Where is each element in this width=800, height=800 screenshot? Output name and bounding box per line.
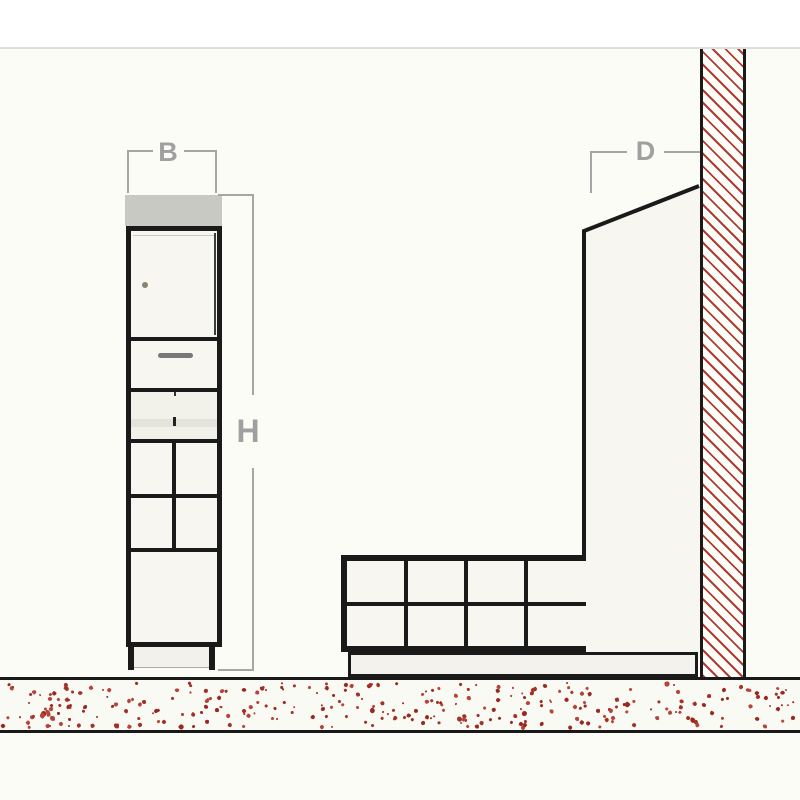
ground-speckle — [57, 712, 60, 715]
appliance-handle-strip — [131, 419, 217, 427]
ground-speckle — [102, 689, 105, 692]
ground-speckle — [520, 708, 523, 711]
ground-speckle — [69, 703, 73, 707]
ground-speckle — [540, 703, 544, 707]
ground-speckle — [791, 701, 794, 704]
ground-speckle — [216, 695, 222, 701]
ground-speckle — [608, 709, 613, 714]
ground-speckle — [432, 714, 435, 717]
ground-speckle — [171, 697, 174, 700]
ground-speckle — [550, 700, 553, 703]
ground-speckle — [130, 697, 134, 701]
ground-speckle — [625, 710, 630, 715]
ground-speckle — [123, 709, 128, 714]
ground-speckle — [28, 702, 30, 704]
ground-speckle — [156, 720, 159, 723]
width-dimension-label: B — [152, 139, 184, 166]
depth-dimension-label: D — [627, 138, 664, 165]
depth-dimension-line — [590, 151, 627, 153]
ground-speckle — [26, 720, 31, 725]
ground-speckle — [558, 689, 563, 694]
ground-speckle — [775, 706, 781, 712]
ground-speckle — [707, 694, 711, 698]
countertop — [125, 195, 222, 226]
ground-speckle — [567, 686, 570, 689]
ground-speckle — [467, 688, 471, 692]
height-dimension-line — [252, 195, 254, 395]
ground-speckle — [567, 725, 572, 730]
ground-speckle — [224, 690, 228, 694]
height-dimension-line — [252, 468, 254, 671]
ground-speckle — [512, 686, 515, 689]
ground-speckle — [88, 685, 93, 690]
ground-speckle — [65, 697, 70, 702]
ground-speckle — [790, 715, 795, 720]
ground-speckle — [477, 714, 480, 717]
ground-speckle — [255, 701, 259, 705]
door-edge-line — [214, 233, 216, 335]
ground-speckle — [315, 692, 318, 695]
ground-speckle — [748, 704, 754, 710]
ground-band — [0, 677, 800, 733]
drawer-front — [131, 341, 217, 388]
width-dimension-line — [184, 150, 217, 152]
ground-speckle — [45, 723, 50, 728]
ground-speckle — [29, 693, 33, 697]
ground-speckle — [442, 709, 446, 713]
ground-speckle — [745, 688, 751, 694]
ground-speckle — [720, 724, 724, 728]
ground-speckle — [459, 682, 463, 686]
ground-speckle — [787, 704, 790, 707]
ground-speckle — [678, 699, 684, 705]
ground-speckle — [763, 724, 767, 728]
shelf-divider — [131, 494, 217, 498]
ground-speckle — [58, 703, 63, 708]
ground-speckle — [350, 684, 354, 688]
ground-speckle — [615, 697, 620, 702]
ground-speckle — [107, 688, 113, 694]
ground-speckle — [31, 714, 35, 718]
ground-speckle — [650, 708, 653, 711]
ground-speckle — [566, 682, 568, 684]
plinth-recess-panel — [134, 647, 209, 668]
ground-speckle — [587, 691, 592, 696]
ground-speckle — [582, 701, 585, 704]
ground-speckle — [174, 688, 180, 694]
ground-speckle — [522, 696, 526, 700]
ground-speckle — [579, 721, 584, 726]
ground-speckle — [82, 710, 85, 713]
ground-speckle — [406, 713, 411, 718]
ceiling-line — [0, 47, 800, 49]
ground-speckle — [375, 683, 380, 688]
ground-speckle — [529, 691, 534, 696]
ground-speckle — [676, 690, 681, 695]
ground-speckle — [578, 706, 582, 710]
ground-speckle — [401, 702, 404, 705]
ground-speckle — [739, 685, 744, 690]
ground-speckle — [429, 699, 433, 703]
ground-speckle — [380, 716, 384, 720]
ground-speckle — [248, 704, 253, 709]
ground-speckle — [521, 711, 527, 717]
ground-speckle — [281, 687, 284, 690]
ground-speckle — [83, 704, 87, 708]
ground-speckle — [319, 724, 325, 730]
ground-speckle — [70, 690, 74, 694]
ground-speckle — [136, 717, 140, 721]
ground-speckle — [68, 718, 71, 721]
ground-speckle — [106, 696, 109, 699]
ground-speckle — [437, 687, 441, 691]
top-margin — [0, 0, 800, 47]
ground-speckle — [539, 721, 543, 725]
ground-speckle — [344, 689, 348, 693]
ground-speckle — [344, 715, 348, 719]
ground-speckle — [496, 689, 501, 694]
ground-speckle — [265, 705, 268, 708]
ground-speckle — [291, 711, 294, 714]
ground-speckle — [68, 725, 70, 727]
ground-speckle — [96, 716, 98, 718]
ground-speckle — [114, 703, 118, 707]
ground-speckle — [381, 711, 384, 714]
ground-speckle — [135, 682, 139, 686]
ground-speckle — [674, 710, 677, 713]
ground-speckle — [332, 694, 336, 698]
ground-speckle — [157, 708, 161, 712]
panel-tick-mark — [174, 392, 176, 396]
ground-speckle — [421, 721, 425, 725]
width-dimension-line — [215, 150, 217, 193]
ground-speckle — [575, 717, 579, 721]
ground-speckle — [573, 704, 579, 710]
ground-speckle — [598, 725, 602, 729]
ground-speckle — [631, 722, 637, 728]
cabinet-leg — [128, 647, 134, 670]
ground-speckle — [178, 724, 184, 730]
ground-speckle — [355, 706, 359, 710]
ground-speckle — [585, 720, 591, 726]
ground-speckle — [615, 705, 619, 709]
ground-speckle — [361, 698, 364, 701]
ground-speckle — [496, 698, 502, 704]
ground-speckle — [380, 701, 385, 706]
door-gap-line — [133, 235, 216, 236]
ground-speckle — [191, 724, 195, 728]
ground-speckle — [161, 720, 167, 726]
depth-dimension-line — [590, 151, 592, 193]
ground-speckle — [483, 707, 486, 710]
ground-speckle — [307, 685, 311, 689]
ground-speckle — [241, 708, 247, 714]
ground-speckle — [436, 720, 441, 725]
ground-speckle — [282, 701, 285, 704]
depth-dimension-line — [664, 151, 700, 153]
ground-speckle — [580, 691, 585, 696]
ground-speckle — [39, 694, 41, 696]
ground-speckle — [128, 725, 133, 730]
wall-section — [700, 49, 746, 677]
ground-speckle — [721, 698, 725, 702]
ground-speckle — [492, 708, 497, 713]
ground-speckle — [241, 725, 245, 729]
ground-speckle — [424, 714, 430, 720]
ground-speckle — [780, 718, 785, 723]
ground-speckle — [50, 716, 55, 721]
ground-speckle — [273, 706, 277, 710]
ground-speckle — [330, 705, 333, 708]
ground-speckle — [225, 713, 231, 719]
ground-speckle — [246, 713, 251, 718]
wall-hatch-pattern — [703, 49, 743, 677]
ground-speckle — [90, 723, 95, 728]
ground-speckle — [721, 688, 726, 693]
ground-speckle — [780, 703, 783, 706]
ground-speckle — [509, 720, 513, 724]
ground-speckle — [293, 684, 297, 688]
ground-speckle — [474, 684, 477, 687]
ground-speckle — [411, 718, 415, 722]
ground-speckle — [462, 714, 466, 718]
tall-cabinet-front-view — [126, 226, 222, 647]
ground-speckle — [539, 699, 543, 703]
base-cabinet-side-view — [341, 555, 586, 652]
ground-speckle — [525, 701, 531, 707]
ground-speckle — [324, 715, 328, 719]
ground-speckle — [6, 716, 10, 720]
ground-speckle — [754, 716, 760, 722]
ground-speckle — [709, 710, 715, 716]
ground-speckle — [421, 693, 425, 697]
ground-speckle — [18, 716, 21, 719]
cabinet-leg — [209, 647, 215, 670]
ground-speckle — [340, 703, 344, 707]
ground-speckle — [465, 724, 469, 728]
ground-speckle — [204, 688, 209, 693]
ground-speckle — [549, 710, 553, 714]
ground-speckle — [138, 722, 143, 727]
ground-speckle — [204, 705, 208, 709]
dimension-diagram: B H D — [0, 0, 800, 800]
width-dimension-line — [127, 150, 129, 193]
ground-speckle — [363, 721, 367, 725]
door-knob — [142, 282, 148, 288]
ground-speckle — [460, 722, 463, 725]
ground-speckle — [414, 709, 418, 713]
ground-speckle — [209, 696, 213, 700]
ground-speckle — [769, 705, 772, 708]
ground-speckle — [215, 708, 220, 713]
ground-speckle — [431, 689, 435, 693]
drawer-handle — [158, 353, 193, 358]
ground-speckle — [57, 697, 61, 701]
ground-speckle — [655, 716, 660, 721]
ground-speckle — [200, 711, 204, 715]
ground-speckle — [585, 687, 589, 691]
ground-speckle — [11, 688, 14, 691]
ground-speckle — [77, 690, 83, 696]
ground-speckle — [425, 690, 428, 693]
cabinet-door — [131, 231, 217, 337]
ground-speckle — [509, 695, 512, 698]
ground-speckle — [542, 684, 547, 689]
ground-speckle — [255, 690, 260, 695]
ground-speckle — [392, 709, 396, 713]
ground-speckle — [141, 700, 146, 705]
ground-speckle — [478, 721, 483, 726]
ground-speckle — [355, 692, 360, 697]
ground-speckle — [275, 718, 278, 721]
ground-speckle — [720, 717, 723, 720]
ground-speckle — [58, 721, 63, 726]
ground-speckle — [584, 705, 587, 708]
ground-speckle — [264, 688, 267, 691]
base-cabinet-row-divider — [347, 602, 586, 606]
ground-speckle — [28, 725, 32, 729]
ground-speckle — [623, 703, 626, 706]
ground-speckle — [569, 691, 574, 696]
ground-speckle — [46, 709, 51, 714]
sloped-side-panel — [582, 184, 701, 653]
ground-speckle — [775, 686, 780, 691]
ground-speckle — [189, 683, 193, 687]
ground-speckle — [252, 712, 255, 715]
width-dimension-line — [127, 150, 153, 152]
ground-speckle — [596, 709, 600, 713]
ground-speckle — [189, 691, 192, 694]
ground-speckle — [270, 717, 275, 722]
base-plinth — [348, 652, 698, 677]
ground-speckle — [47, 696, 53, 702]
ground-speckle — [667, 710, 672, 715]
ground-speckle — [281, 682, 284, 685]
ground-speckle — [152, 712, 154, 714]
ground-speckle — [325, 685, 331, 691]
ground-speckle — [77, 723, 82, 728]
ground-speckle — [763, 695, 768, 700]
ground-speckle — [51, 690, 57, 696]
ground-speckle — [521, 692, 524, 695]
ground-speckle — [330, 726, 333, 729]
appliance-panel — [131, 392, 217, 439]
ground-speckle — [454, 694, 458, 698]
ground-speckle — [632, 700, 635, 703]
ground-speckle — [292, 705, 295, 708]
ground-speckle — [241, 687, 247, 693]
ground-speckle — [657, 700, 661, 704]
ground-speckle — [564, 697, 569, 702]
ground-speckle — [344, 683, 349, 688]
ground-speckle — [785, 689, 788, 692]
bottom-door-panel — [131, 552, 217, 642]
ground-speckle — [467, 696, 471, 700]
height-dimension-tick — [218, 669, 254, 671]
ground-speckle — [320, 706, 325, 711]
ground-speckle — [665, 682, 670, 687]
ground-speckle — [475, 724, 479, 728]
ground-speckle — [394, 682, 398, 686]
ground-speckle — [512, 713, 517, 718]
ground-speckle — [227, 722, 232, 727]
ground-speckle — [726, 697, 730, 701]
ground-speckle — [692, 701, 697, 706]
ground-speckle — [205, 720, 209, 724]
ground-speckle — [455, 703, 457, 705]
ground-speckle — [628, 687, 632, 691]
ground-speckle — [777, 696, 781, 700]
ground-speckle — [673, 683, 676, 686]
ground-speckle — [371, 723, 375, 727]
ground-speckle — [0, 723, 5, 728]
ground-speckle — [678, 711, 681, 714]
panel-tick-mark — [173, 417, 176, 426]
ground-speckle — [702, 702, 707, 707]
height-dimension-tick — [218, 194, 254, 196]
ground-speckle — [695, 722, 701, 728]
height-dimension-label: H — [228, 415, 268, 447]
ground-speckle — [387, 713, 390, 716]
open-shelf-cells — [131, 443, 217, 548]
ground-speckle — [310, 715, 315, 720]
ground-speckle — [497, 716, 501, 720]
ground-speckle — [181, 713, 184, 716]
ground-speckle — [489, 717, 493, 721]
tall-cabinet-interior — [131, 231, 217, 642]
ground-speckle — [114, 724, 119, 729]
ground-speckle — [190, 711, 196, 717]
